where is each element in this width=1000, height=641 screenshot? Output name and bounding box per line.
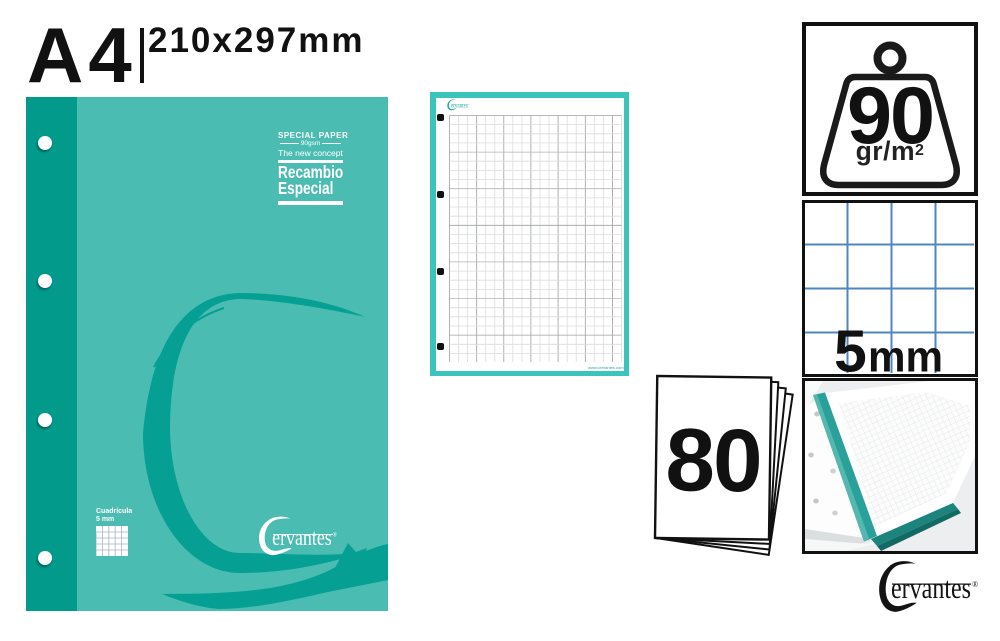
svg-text:®: ®	[972, 580, 978, 589]
svg-text:gr/m2: gr/m2	[856, 136, 925, 166]
svg-text:mm: mm	[868, 333, 943, 374]
svg-text:5: 5	[834, 319, 867, 374]
svg-text:80: 80	[665, 409, 761, 510]
svg-text:ervantes: ervantes	[891, 570, 971, 605]
